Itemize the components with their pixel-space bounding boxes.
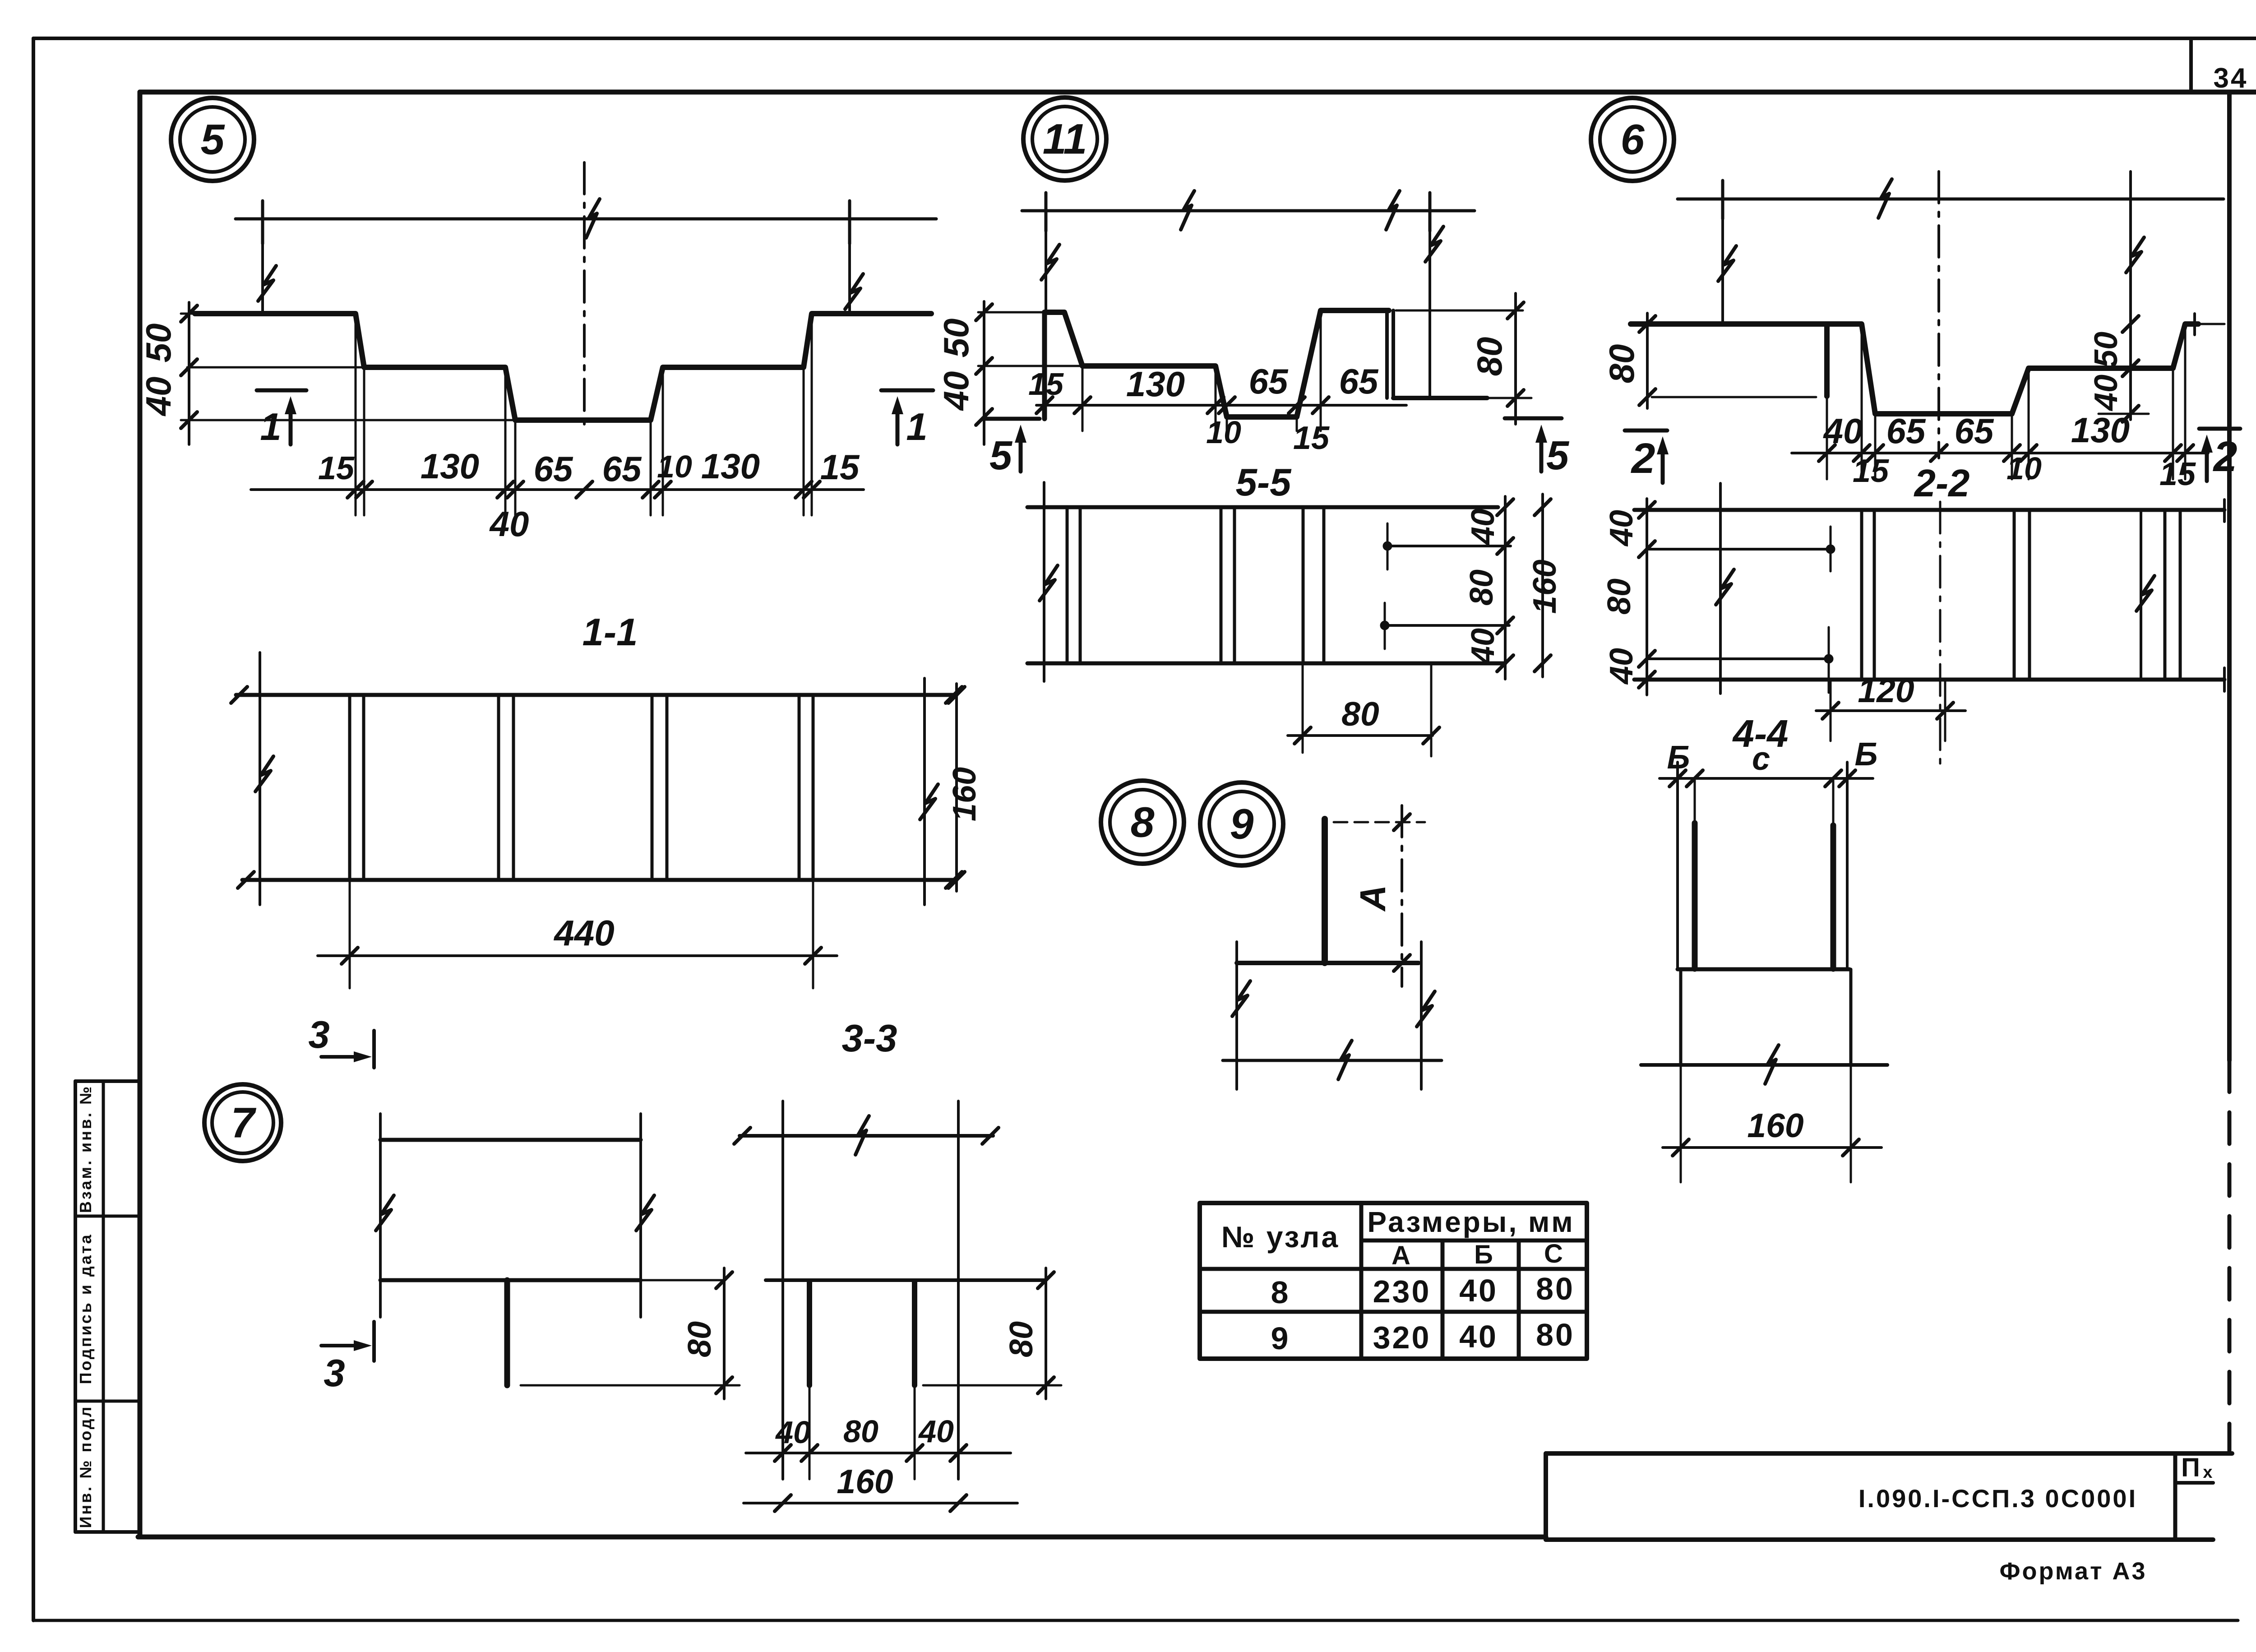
svg-text:160: 160 [1747, 1106, 1803, 1144]
svg-text:I.090.I-ССП.3 0С000I: I.090.I-ССП.3 0С000I [1858, 1484, 2137, 1513]
svg-text:3: 3 [308, 1013, 329, 1056]
svg-text:65: 65 [1886, 411, 1926, 451]
svg-text:10: 10 [2006, 451, 2042, 486]
svg-text:80: 80 [1602, 344, 1641, 384]
svg-text:230: 230 [1373, 1274, 1431, 1309]
svg-text:5: 5 [1546, 433, 1570, 478]
svg-text:40: 40 [1465, 509, 1501, 546]
svg-text:15: 15 [2159, 456, 2196, 492]
svg-text:Размеры, мм: Размеры, мм [1367, 1206, 1574, 1238]
svg-text:40: 40 [1823, 411, 1863, 451]
svg-text:5: 5 [989, 433, 1013, 478]
svg-text:№ узла: № узла [1221, 1220, 1340, 1254]
svg-text:11: 11 [1043, 115, 1087, 163]
svg-text:5: 5 [201, 116, 225, 163]
svg-text:50: 50 [2088, 332, 2124, 368]
svg-text:120: 120 [1858, 671, 1914, 709]
svg-text:2: 2 [1631, 435, 1655, 482]
svg-text:80: 80 [1470, 337, 1509, 376]
svg-text:40: 40 [489, 504, 529, 544]
svg-text:40: 40 [936, 371, 976, 412]
svg-text:10: 10 [1206, 415, 1241, 450]
svg-text:8: 8 [1271, 1275, 1290, 1310]
svg-text:7: 7 [231, 1099, 257, 1147]
svg-text:Б: Б [1855, 736, 1878, 773]
svg-text:440: 440 [553, 913, 614, 953]
svg-text:160: 160 [1527, 560, 1563, 614]
svg-text:130: 130 [421, 446, 479, 486]
svg-text:160: 160 [837, 1462, 893, 1500]
svg-text:А: А [1392, 1241, 1412, 1270]
svg-text:Б: Б [1474, 1240, 1495, 1269]
svg-text:80: 80 [1601, 578, 1637, 615]
svg-text:х: х [2203, 1463, 2214, 1482]
svg-text:130: 130 [1126, 364, 1185, 404]
svg-text:15: 15 [318, 450, 355, 486]
svg-text:65: 65 [1955, 411, 1994, 451]
svg-text:10: 10 [657, 449, 692, 484]
svg-text:130: 130 [701, 446, 760, 486]
svg-text:320: 320 [1373, 1320, 1431, 1355]
svg-text:Инв. № подл: Инв. № подл [76, 1405, 95, 1528]
svg-text:3: 3 [324, 1352, 345, 1395]
svg-text:40: 40 [1459, 1319, 1498, 1354]
svg-text:9: 9 [1230, 800, 1254, 848]
svg-text:65: 65 [1249, 361, 1289, 401]
svg-text:2: 2 [2213, 433, 2238, 481]
svg-text:С: С [1544, 1239, 1565, 1268]
svg-text:1-1: 1-1 [582, 611, 638, 654]
svg-text:Формат А3: Формат А3 [1999, 1558, 2147, 1585]
svg-text:40: 40 [1604, 648, 1640, 685]
svg-text:80: 80 [1464, 569, 1500, 606]
svg-text:3-3: 3-3 [842, 1017, 897, 1060]
svg-text:40: 40 [1604, 510, 1640, 547]
svg-text:Взам. инв. №: Взам. инв. № [76, 1085, 95, 1213]
svg-text:5-5: 5-5 [1236, 461, 1292, 504]
svg-text:2-2: 2-2 [1914, 462, 1970, 505]
svg-text:80: 80 [843, 1414, 878, 1449]
svg-text:80: 80 [1536, 1271, 1575, 1306]
svg-text:40: 40 [2088, 375, 2124, 412]
svg-text:8: 8 [1131, 798, 1155, 846]
svg-text:65: 65 [534, 449, 573, 489]
svg-text:80: 80 [1536, 1317, 1575, 1352]
svg-text:80: 80 [1003, 1321, 1040, 1357]
svg-text:15: 15 [1293, 420, 1330, 456]
svg-text:130: 130 [2071, 410, 2130, 450]
svg-text:6: 6 [1621, 116, 1645, 163]
svg-text:Подпись и дата: Подпись и дата [76, 1233, 95, 1384]
svg-text:1: 1 [906, 406, 927, 449]
svg-text:80: 80 [1341, 695, 1379, 733]
svg-text:65: 65 [602, 449, 642, 489]
svg-text:А: А [1353, 885, 1393, 912]
svg-text:40: 40 [918, 1414, 954, 1449]
svg-text:40: 40 [775, 1415, 811, 1450]
svg-text:с: с [1752, 741, 1770, 777]
svg-text:15: 15 [1028, 366, 1064, 402]
svg-text:50: 50 [936, 319, 976, 358]
svg-text:160: 160 [947, 767, 983, 821]
svg-text:80: 80 [682, 1321, 718, 1357]
svg-text:9: 9 [1271, 1321, 1290, 1356]
svg-text:50: 50 [139, 324, 178, 363]
svg-text:40: 40 [139, 377, 178, 417]
svg-text:34: 34 [2214, 63, 2248, 94]
svg-text:40: 40 [1465, 628, 1501, 665]
svg-text:15: 15 [1853, 453, 1889, 489]
svg-text:15: 15 [820, 447, 860, 487]
svg-text:1: 1 [260, 406, 281, 449]
svg-text:65: 65 [1339, 361, 1379, 401]
svg-text:П: П [2181, 1453, 2202, 1482]
svg-text:40: 40 [1459, 1273, 1498, 1308]
